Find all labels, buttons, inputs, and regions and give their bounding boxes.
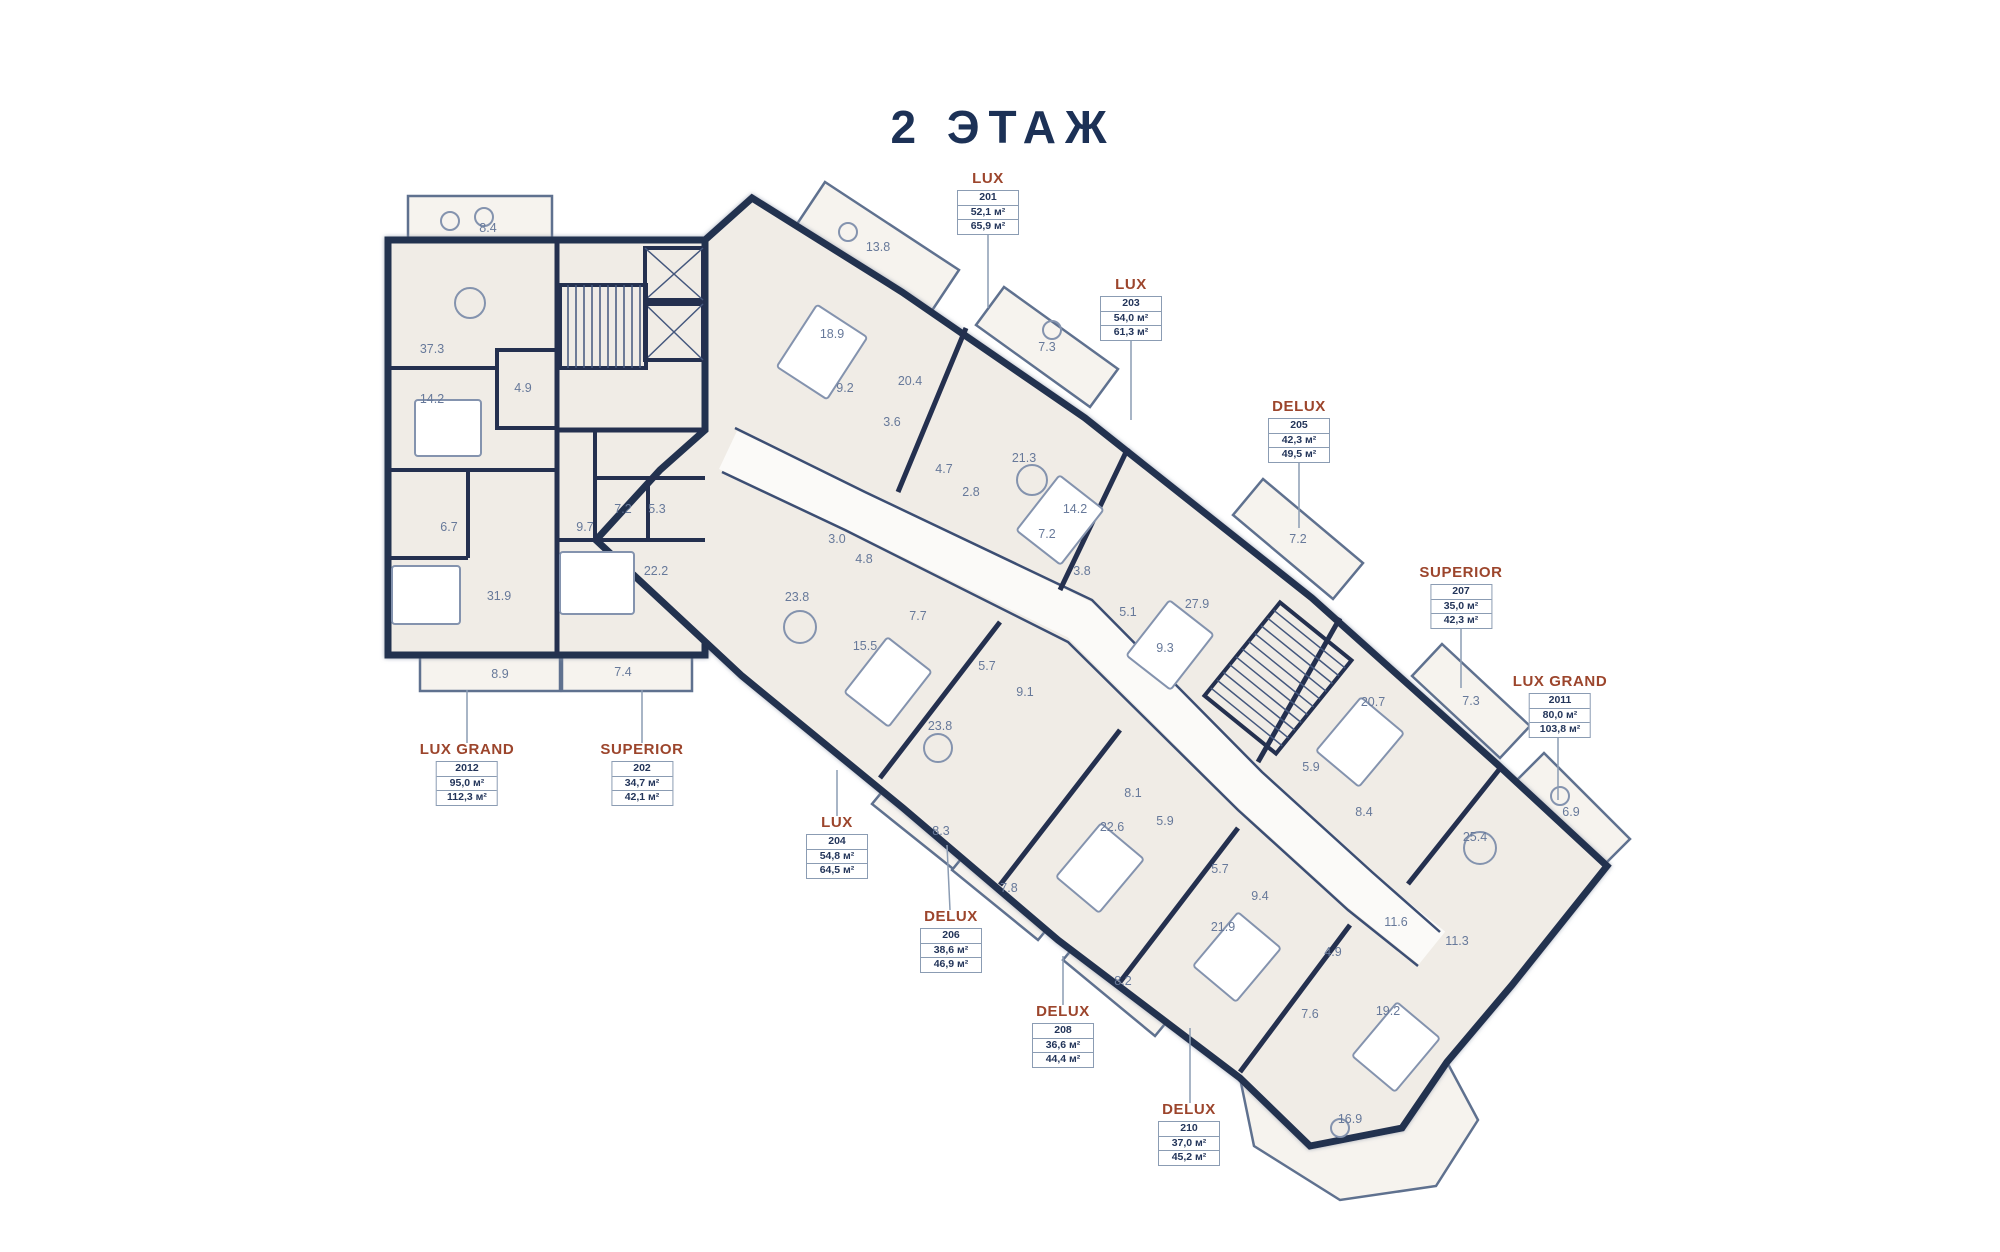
room-area-label: 4.7 (935, 462, 952, 476)
room-area-label: 8.4 (1355, 805, 1372, 819)
room-area-label: 5.3 (648, 502, 665, 516)
room-area-label: 20.7 (1361, 695, 1385, 709)
room-area-label: 11.3 (1445, 934, 1468, 948)
unit-label-210: DELUX21037,0 м²45,2 м² (1158, 1101, 1220, 1166)
unit-info-box: 20638,6 м²46,9 м² (920, 928, 982, 973)
room-area-label: 3.0 (828, 532, 845, 546)
unit-area-living: 35,0 м² (1431, 599, 1491, 614)
unit-area-total: 46,9 м² (921, 957, 981, 972)
unit-number: 2011 (1530, 694, 1590, 708)
unit-area-total: 42,1 м² (612, 790, 672, 805)
room-area-label: 23.8 (928, 719, 952, 733)
unit-number: 202 (612, 762, 672, 776)
unit-number: 2012 (437, 762, 497, 776)
room-area-label: 27.9 (1185, 597, 1209, 611)
room-area-label: 7.2 (1289, 532, 1306, 546)
unit-info-box: 20152,1 м²65,9 м² (957, 190, 1019, 235)
unit-info-box: 20735,0 м²42,3 м² (1430, 584, 1492, 629)
unit-area-living: 37,0 м² (1159, 1136, 1219, 1151)
unit-area-living: 54,0 м² (1101, 311, 1161, 326)
unit-number: 201 (958, 191, 1018, 205)
unit-info-box: 20836,6 м²44,4 м² (1032, 1023, 1094, 1068)
unit-type-label: SUPERIOR (1419, 564, 1502, 581)
unit-area-living: 36,6 м² (1033, 1038, 1093, 1053)
room-area-label: 5.9 (1302, 760, 1319, 774)
room-area-label: 7.8 (1000, 881, 1017, 895)
unit-type-label: DELUX (1268, 398, 1330, 415)
room-area-label: 7.3 (1462, 694, 1479, 708)
room-area-label: 5.7 (1211, 862, 1228, 876)
unit-area-total: 42,3 м² (1431, 613, 1491, 628)
unit-number: 205 (1269, 419, 1329, 433)
unit-area-living: 80,0 м² (1530, 708, 1590, 723)
unit-number: 208 (1033, 1024, 1093, 1038)
unit-info-box: 21037,0 м²45,2 м² (1158, 1121, 1220, 1166)
room-area-label: 18.9 (820, 327, 844, 341)
room-area-label: 19.2 (1376, 1004, 1400, 1018)
room-area-label: 8.3 (932, 824, 949, 838)
unit-info-box: 20542,3 м²49,5 м² (1268, 418, 1330, 463)
unit-info-box: 20234,7 м²42,1 м² (611, 761, 673, 806)
room-area-label: 5.1 (1119, 605, 1136, 619)
balcony (408, 196, 552, 242)
unit-area-living: 42,3 м² (1269, 433, 1329, 448)
unit-label-208: DELUX20836,6 м²44,4 м² (1032, 1003, 1094, 1068)
unit-type-label: DELUX (1032, 1003, 1094, 1020)
unit-label-202: SUPERIOR20234,7 м²42,1 м² (600, 741, 683, 806)
room-area-label: 22.6 (1100, 820, 1124, 834)
room-area-label: 7.4 (614, 665, 631, 679)
unit-number: 207 (1431, 585, 1491, 599)
room-area-label: 9.1 (1016, 685, 1033, 699)
unit-type-label: LUX (1100, 276, 1162, 293)
unit-label-2011: LUX GRAND201180,0 м²103,8 м² (1513, 673, 1608, 738)
room-area-label: 2.8 (962, 485, 979, 499)
room-area-label: 11.6 (1384, 915, 1407, 929)
room-area-label: 5.7 (978, 659, 995, 673)
room-area-label: 14.2 (420, 392, 444, 406)
unit-label-203: LUX20354,0 м²61,3 м² (1100, 276, 1162, 341)
room-area-label: 7.2 (614, 502, 631, 516)
balcony (420, 653, 560, 691)
unit-info-box: 201180,0 м²103,8 м² (1529, 693, 1591, 738)
unit-type-label: LUX (957, 170, 1019, 187)
unit-label-205: DELUX20542,3 м²49,5 м² (1268, 398, 1330, 463)
room-area-label: 31.9 (487, 589, 511, 603)
unit-label-207: SUPERIOR20735,0 м²42,3 м² (1419, 564, 1502, 629)
unit-number: 210 (1159, 1122, 1219, 1136)
room-area-label: 9.7 (576, 520, 593, 534)
unit-label-206: DELUX20638,6 м²46,9 м² (920, 908, 982, 973)
room-area-label: 8.2 (1114, 974, 1131, 988)
unit-label-2012: LUX GRAND201295,0 м²112,3 м² (420, 741, 515, 806)
unit-label-201: LUX20152,1 м²65,9 м² (957, 170, 1019, 235)
unit-area-total: 112,3 м² (437, 790, 497, 805)
floor-plan-page: 2 ЭТАЖ (0, 0, 2000, 1252)
room-area-label: 9.3 (1156, 641, 1173, 655)
unit-area-total: 61,3 м² (1101, 325, 1161, 340)
room-area-label: 7.2 (1038, 527, 1055, 541)
room-area-label: 3.8 (1073, 564, 1090, 578)
room-area-label: 9.4 (1251, 889, 1268, 903)
unit-label-204: LUX20454,8 м²64,5 м² (806, 814, 868, 879)
unit-area-living: 34,7 м² (612, 776, 672, 791)
unit-area-total: 45,2 м² (1159, 1150, 1219, 1165)
unit-area-total: 49,5 м² (1269, 447, 1329, 462)
room-area-label: 7.7 (909, 609, 926, 623)
room-area-label: 7.3 (1038, 340, 1055, 354)
unit-number: 206 (921, 929, 981, 943)
room-area-label: 8.9 (491, 667, 508, 681)
unit-area-total: 65,9 м² (958, 219, 1018, 234)
unit-type-label: DELUX (1158, 1101, 1220, 1118)
room-area-label: 23.8 (785, 590, 809, 604)
room-area-label: 21.3 (1012, 451, 1036, 465)
unit-area-living: 52,1 м² (958, 205, 1018, 220)
unit-type-label: LUX (806, 814, 868, 831)
room-area-label: 4.9 (514, 381, 531, 395)
room-area-label: 6.7 (440, 520, 457, 534)
room-area-label: 8.1 (1124, 786, 1141, 800)
room-area-label: 15.5 (853, 639, 877, 653)
room-area-label: 14.2 (1063, 502, 1087, 516)
room-area-label: 6.9 (1562, 805, 1579, 819)
room-area-label: 13.8 (866, 240, 890, 254)
room-area-label: 4.8 (855, 552, 872, 566)
room-area-label: 16.9 (1338, 1112, 1362, 1126)
unit-type-label: LUX GRAND (1513, 673, 1608, 690)
unit-type-label: LUX GRAND (420, 741, 515, 758)
room-area-label: 7.6 (1301, 1007, 1318, 1021)
room-area-label: 25.4 (1463, 830, 1487, 844)
room-area-label: 20.4 (898, 374, 922, 388)
unit-type-label: SUPERIOR (600, 741, 683, 758)
unit-info-box: 201295,0 м²112,3 м² (436, 761, 498, 806)
unit-number: 203 (1101, 297, 1161, 311)
unit-type-label: DELUX (920, 908, 982, 925)
unit-area-living: 95,0 м² (437, 776, 497, 791)
room-area-label: 22.2 (644, 564, 668, 578)
room-area-label: 4.9 (1324, 945, 1341, 959)
unit-number: 204 (807, 835, 867, 849)
room-area-label: 5.9 (1156, 814, 1173, 828)
room-area-label: 9.2 (836, 381, 853, 395)
room-area-label: 21.9 (1211, 920, 1235, 934)
unit-area-living: 54,8 м² (807, 849, 867, 864)
room-area-label: 3.6 (883, 415, 900, 429)
unit-info-box: 20454,8 м²64,5 м² (806, 834, 868, 879)
unit-area-total: 44,4 м² (1033, 1052, 1093, 1067)
room-area-label: 37.3 (420, 342, 444, 356)
unit-area-living: 38,6 м² (921, 943, 981, 958)
unit-area-total: 64,5 м² (807, 863, 867, 878)
unit-info-box: 20354,0 м²61,3 м² (1100, 296, 1162, 341)
room-area-label: 8.4 (479, 221, 496, 235)
unit-area-total: 103,8 м² (1530, 722, 1590, 737)
